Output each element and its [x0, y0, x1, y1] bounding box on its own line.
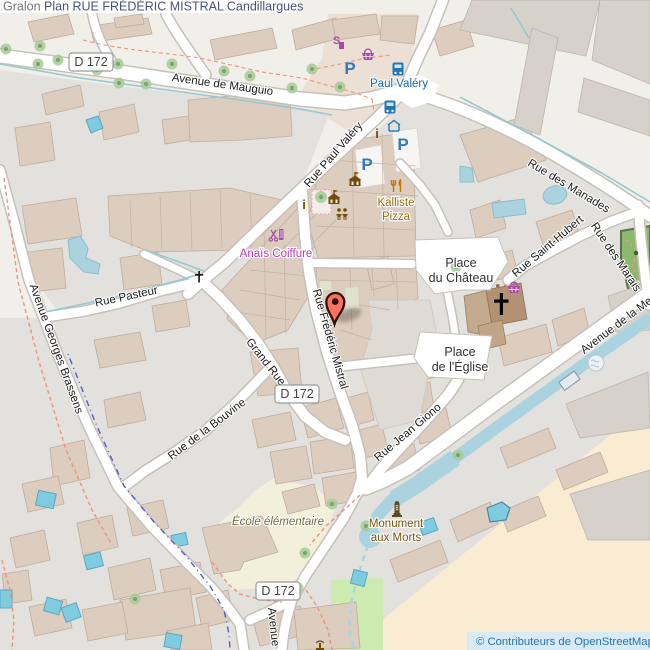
svg-text:Place: Place: [444, 345, 475, 359]
svg-text:de l'Église: de l'Église: [432, 359, 489, 374]
svg-text:Gralon Plan RUE FRÉDÉRIC MISTR: Gralon Plan RUE FRÉDÉRIC MISTRAL Candill…: [3, 0, 303, 14]
svg-text:P: P: [344, 59, 355, 78]
svg-text:P: P: [397, 135, 408, 154]
svg-text:D 172: D 172: [74, 55, 107, 69]
svg-text:i: i: [375, 126, 379, 141]
svg-text:Paul Valéry: Paul Valéry: [370, 78, 428, 90]
svg-text:Monument: Monument: [369, 518, 424, 530]
svg-text:D 172: D 172: [280, 387, 313, 401]
svg-text:aux Morts: aux Morts: [371, 532, 422, 544]
svg-text:Kalliste: Kalliste: [377, 197, 414, 209]
svg-text:Place: Place: [445, 256, 476, 270]
svg-text:© Contributeurs de OpenStreetM: © Contributeurs de OpenStreetMap: [476, 636, 650, 648]
svg-text:i: i: [302, 197, 306, 212]
svg-text:P: P: [361, 155, 372, 174]
svg-text:Pizza: Pizza: [382, 211, 411, 223]
svg-text:École élémentaire: École élémentaire: [232, 515, 324, 528]
svg-text:Anaïs Coiffure: Anaïs Coiffure: [240, 248, 313, 260]
svg-text:D 172: D 172: [261, 584, 294, 598]
svg-text:du Château: du Château: [429, 271, 494, 285]
